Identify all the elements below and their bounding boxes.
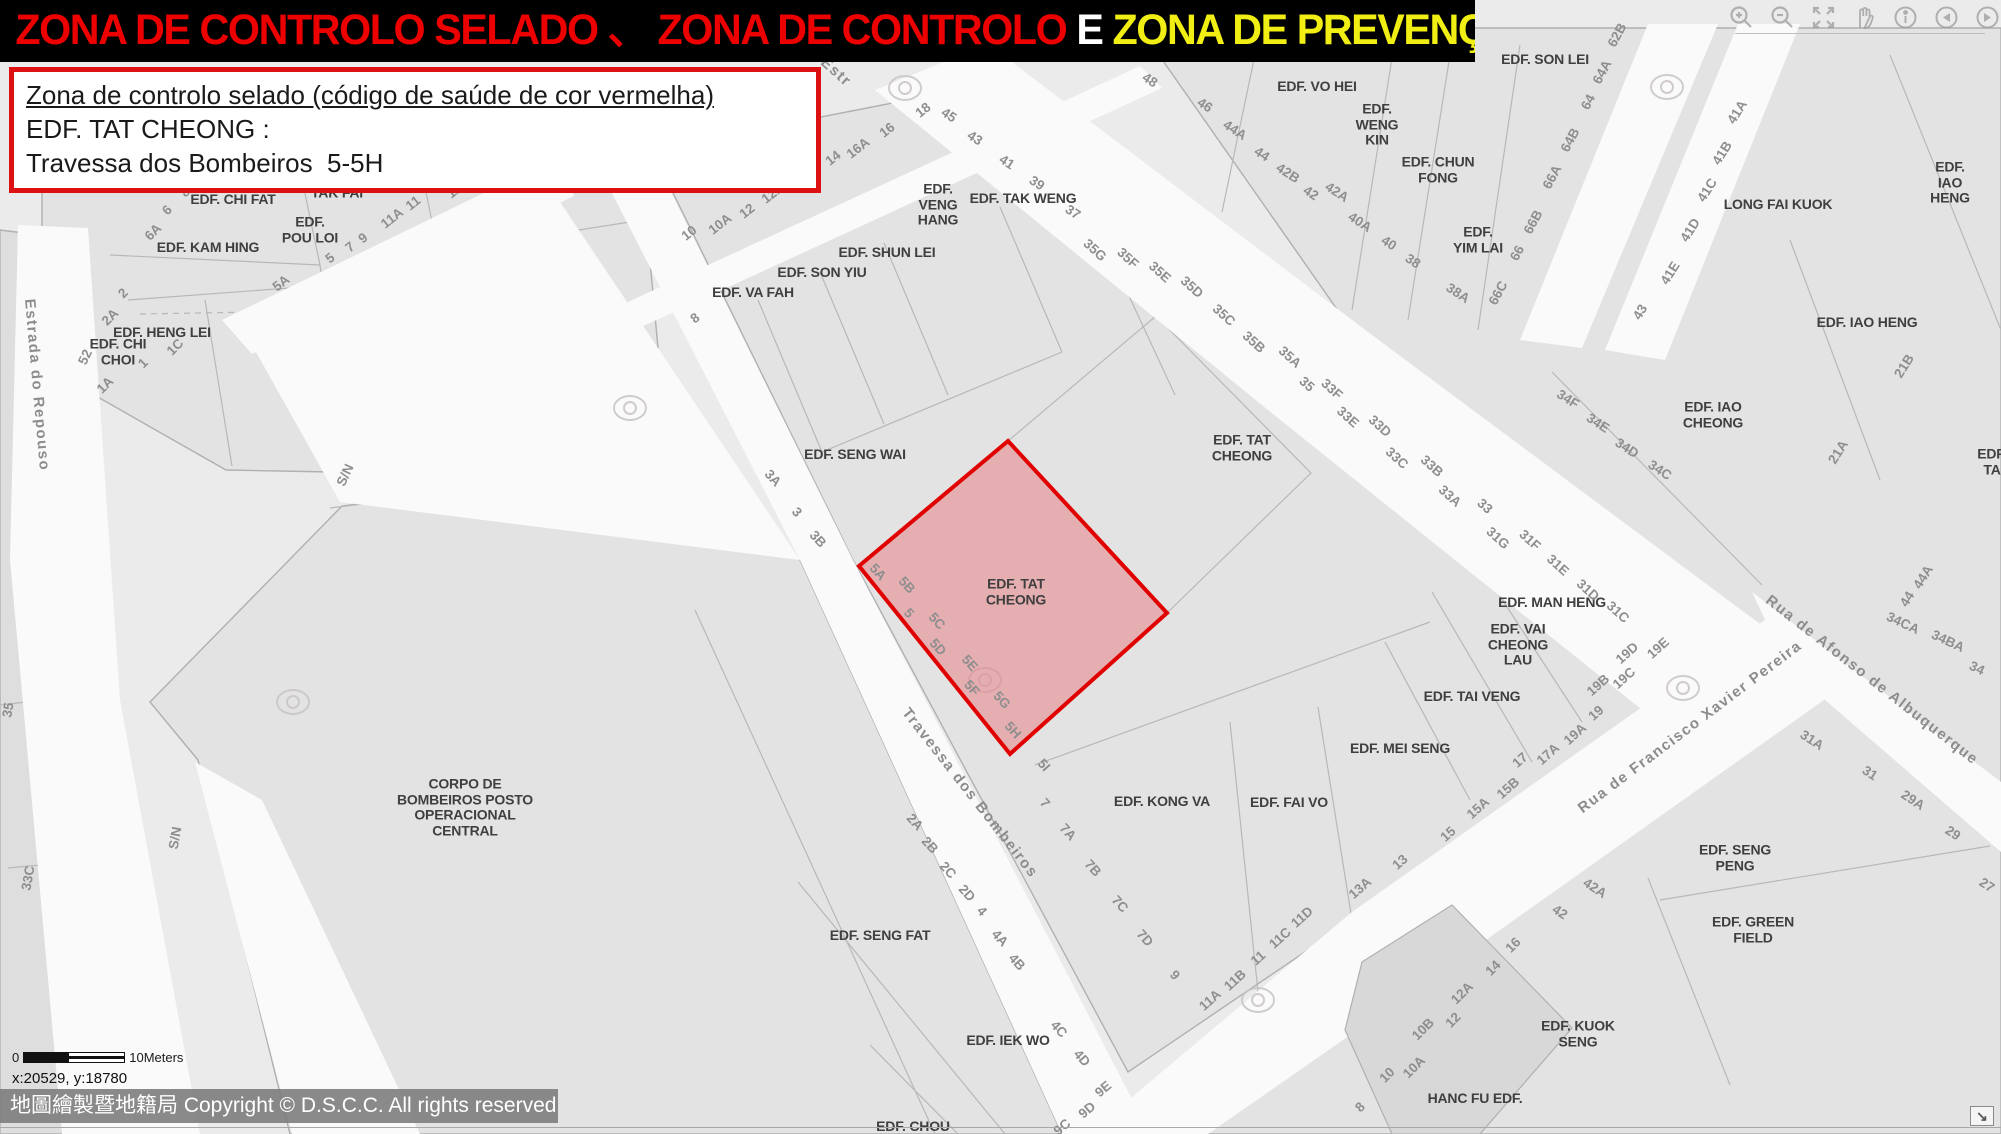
title-segment-yellow: ZONA DE PREVENÇÃO [1113, 6, 1475, 54]
map-viewer-window: EDF. CHI FATEDF. TAK FAIEDF. KAM HINGEDF… [0, 0, 2001, 1134]
scale-distance-label: 10Meters [129, 1050, 183, 1065]
identify-button[interactable] [1892, 4, 1919, 31]
title-segment-white: E [1076, 6, 1112, 54]
full-extent-icon [1810, 4, 1837, 31]
zoom-out-icon [1769, 4, 1796, 31]
previous-view-button[interactable] [1933, 4, 1960, 31]
page-title: ZONA DE CONTROLO SELADO 、 ZONA DE CONTRO… [0, 0, 1416, 60]
identify-icon [1892, 4, 1919, 31]
overview-map-toggle[interactable]: ↘ [1970, 1106, 1994, 1126]
coordinates-readout: x:20529, y:18780 [12, 1070, 127, 1087]
toolbar-divider [1735, 33, 1985, 34]
info-box-building: EDF. TAT CHEONG : [26, 112, 804, 146]
info-box-address: Travessa dos Bombeiros 5-5H [26, 146, 804, 180]
scale-bar: 0 10Meters [12, 1050, 183, 1065]
header-banner: ZONA DE CONTROLO SELADO 、 ZONA DE CONTRO… [0, 0, 1475, 62]
next-view-icon [1974, 4, 2001, 31]
map-toolbar [1728, 4, 2001, 31]
next-view-button[interactable] [1974, 4, 2001, 31]
pan-hand-icon [1851, 4, 1878, 31]
pan-button[interactable] [1851, 4, 1878, 31]
zoom-in-icon [1728, 4, 1755, 31]
scale-zero-label: 0 [12, 1050, 19, 1065]
overview-arrow-icon: ↘ [1976, 1108, 1988, 1124]
full-extent-button[interactable] [1810, 4, 1837, 31]
zoom-in-button[interactable] [1728, 4, 1755, 31]
window-bottom-border [0, 1127, 2001, 1128]
info-box-title: Zona de controlo selado (código de saúde… [26, 78, 804, 112]
title-segment-red: ZONA DE CONTROLO SELADO 、 ZONA DE CONTRO… [15, 6, 1076, 54]
scale-bar-graphic [23, 1052, 125, 1063]
zoom-out-button[interactable] [1769, 4, 1796, 31]
copyright-bar: 地圖繪製暨地籍局 Copyright © D.S.C.C. All rights… [0, 1089, 558, 1123]
previous-view-icon [1933, 4, 1960, 31]
sealed-zone-info-box: Zona de controlo selado (código de saúde… [9, 67, 821, 193]
